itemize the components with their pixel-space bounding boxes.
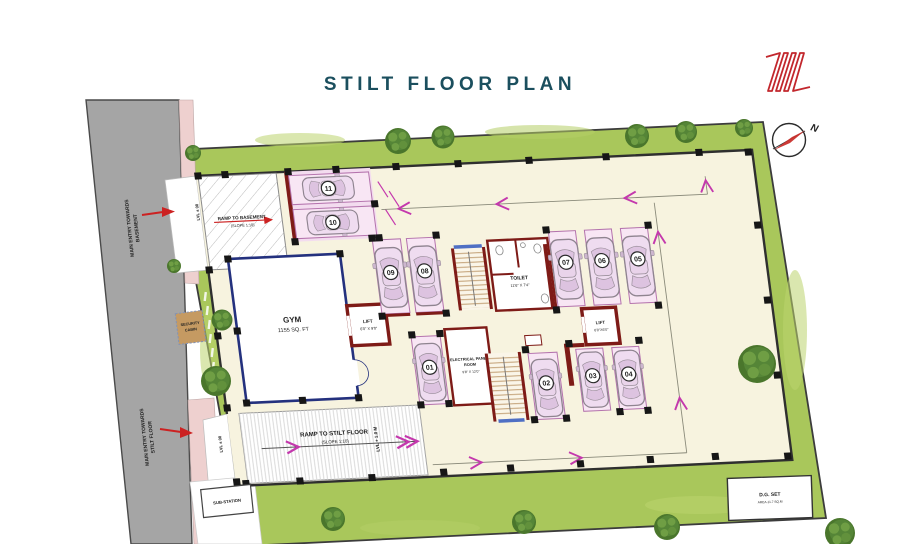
building: RAMP TO BASEMENT (SLOPE 1:10) 11 10 [193,146,792,487]
stall-05-number: 05 [634,256,643,263]
stall-07-number: 07 [562,260,571,267]
tree-icon [385,128,411,154]
stall-04-number: 04 [625,371,634,378]
tree-icon [201,366,231,396]
tree-icon [825,518,855,544]
stilt-floor-plan-sheet: STILT FLOOR PLAN [0,0,900,544]
lift-lower: LIFT 6'0"X6'0" [580,307,620,345]
lift-upper-label: LIFT [363,319,374,324]
tree-icon [738,345,776,383]
brand-logo-icon [766,53,810,91]
stall-11-number: 11 [324,186,332,193]
tree-icon [167,259,181,273]
stall-02-number: 02 [542,380,551,387]
tree-icon [735,119,753,137]
stall-03-number: 03 [589,373,598,380]
stall-10-number: 10 [329,220,338,227]
dg-set: D.G. SET AREA-11.7 SQ.M [727,476,812,521]
toilet-label: TOILET [510,275,529,282]
electrical-room-size: 9'8" X 12'0" [462,369,481,374]
tree-icon [625,124,649,148]
stall-06-number: 06 [598,258,607,265]
compass: N [773,122,821,156]
tree-icon [512,510,536,534]
tree-icon [321,507,345,531]
lift-lower-size: 6'0"X6'0" [594,328,610,333]
tree-icon [675,121,697,143]
fire-hose-cabinet [525,335,542,346]
site-plan-drawing: RAMP TO BASEMENT (SLOPE 1:10) 11 10 [0,0,900,544]
ramp-to-basement: RAMP TO BASEMENT (SLOPE 1:10) [198,173,288,270]
substation: SUB-STATION [201,484,254,517]
electrical-room-label-2: ROOM [464,362,477,368]
parking-stall-10: 10 [293,206,377,239]
tree-icon [432,126,455,149]
stall-01-number: 01 [425,365,434,372]
lift-lower-label: LIFT [595,320,605,325]
stall-08-number: 08 [420,268,429,275]
gym-label: GYM [283,315,303,325]
tree-icon [212,310,233,331]
dg-set-label: D.G. SET [759,492,781,499]
ramp-to-stilt-floor: RAMP TO STILT FLOOR (SLOPE 1:10) [239,405,428,483]
basin-icon [520,243,525,248]
parking-stall-11: 11 [289,172,373,205]
security-cabin: SECURITY CABIN [175,310,206,344]
tree-icon [654,514,680,540]
stall-09-number: 09 [386,270,395,277]
compass-north-label: N [809,122,820,135]
tree-icon [185,145,201,161]
lift-upper-size: 6'0" X 9'0" [360,326,378,331]
